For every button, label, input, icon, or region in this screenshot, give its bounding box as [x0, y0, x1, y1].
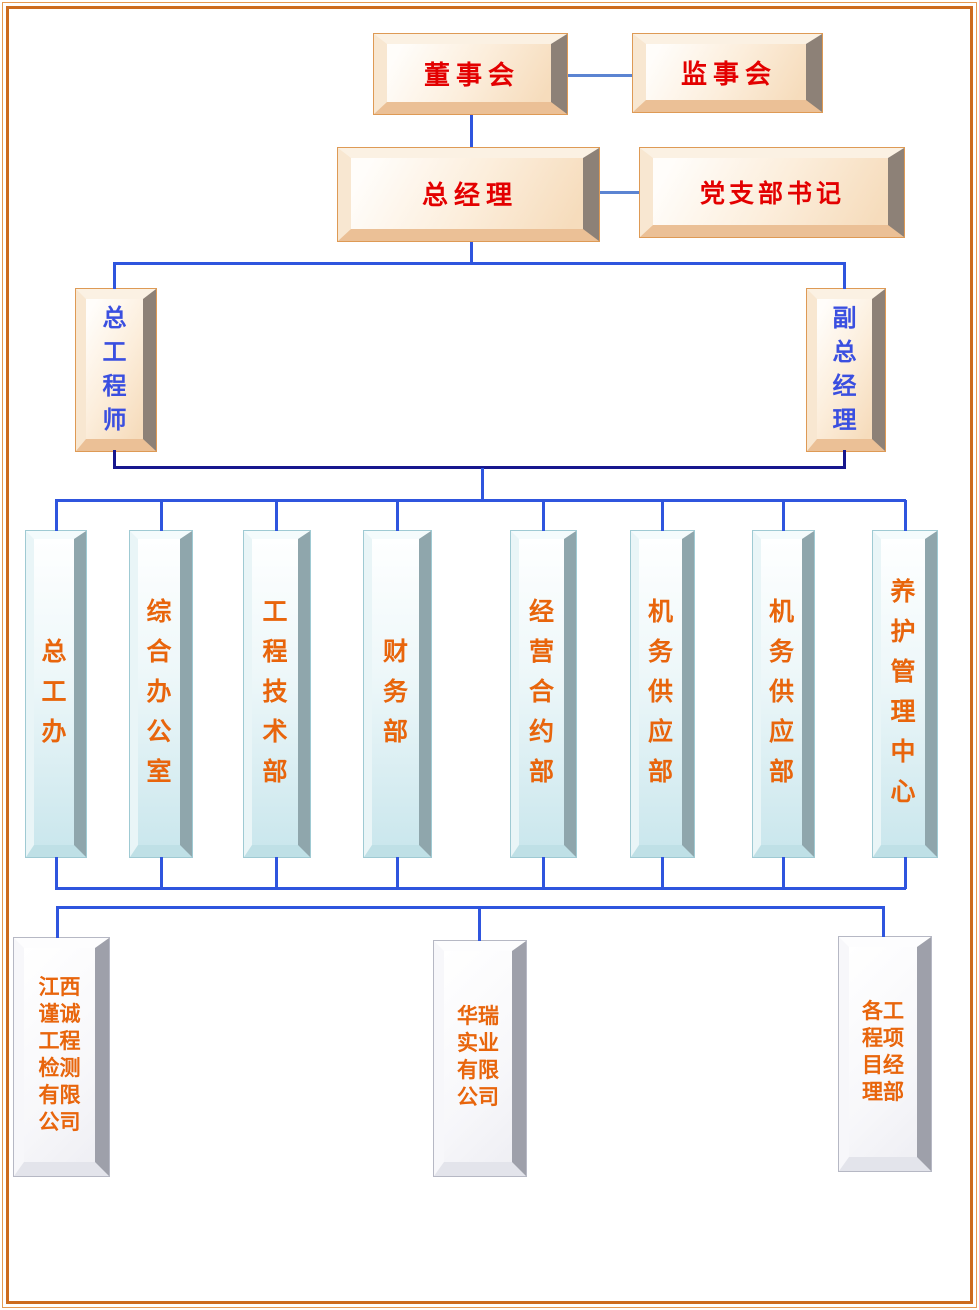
node-dept-general-engineering-office: 总工办	[25, 530, 87, 858]
node-deputy-general-manager: 副总经理	[806, 288, 886, 452]
connector-sub-drop-2	[478, 906, 481, 941]
connector-dept-out-8	[904, 857, 907, 889]
connector-dept-drop-5	[542, 500, 545, 531]
node-supervisory-board: 监事会	[632, 33, 823, 113]
connector-dept-out-4	[396, 857, 399, 889]
node-label: 机务供应部	[646, 592, 675, 792]
node-dept-operations-contract: 经营合约部	[510, 530, 577, 858]
node-label: 监事会	[675, 54, 777, 91]
node-label: 总工办	[40, 632, 69, 752]
connector-sub-drop-3	[882, 906, 885, 937]
connector-dept-drop-3	[275, 500, 278, 531]
connector-dept-out-5	[542, 857, 545, 889]
connector-dept-out-6	[661, 857, 664, 889]
connector-drop-deputy-gm	[843, 262, 846, 289]
connector-dept-drop-1	[55, 500, 58, 531]
node-label: 总经理	[416, 175, 518, 212]
node-label: 经营合约部	[527, 592, 556, 792]
node-label: 党支部书记	[696, 174, 845, 210]
node-project-manager-departments: 各工程项目经理部	[838, 936, 932, 1172]
connector-dept-out-7	[782, 857, 785, 889]
connector-drop-chief-engineer	[113, 262, 116, 289]
node-party-branch-secretary: 党支部书记	[639, 147, 905, 238]
node-label: 董事会	[418, 55, 520, 92]
node-label: 财务部	[381, 632, 410, 752]
connector-collector-bus	[55, 887, 906, 890]
node-label: 养护管理中心	[889, 572, 918, 812]
node-chief-engineer: 总工程师	[75, 288, 157, 452]
org-chart-page: 董事会 监事会 总经理 党支部书记 总工程师 副总经理 总工办 综合办公室 工程…	[0, 0, 979, 1310]
connector-board-to-gm	[470, 115, 473, 147]
node-dept-comprehensive-office: 综合办公室	[129, 530, 193, 858]
connector-subsidiaries-bus	[56, 906, 885, 909]
node-dept-machinery-supply-1: 机务供应部	[630, 530, 695, 858]
connector-departments-bus	[55, 499, 906, 502]
node-label: 副总经理	[831, 301, 859, 437]
connector-dept-drop-2	[160, 500, 163, 531]
connector-dept-drop-7	[782, 500, 785, 531]
node-dept-maintenance-management-center: 养护管理中心	[872, 530, 938, 858]
connector-board-supervisory	[568, 74, 632, 77]
node-label: 总工程师	[101, 301, 129, 437]
connector-center-drop	[481, 468, 484, 501]
connector-dept-drop-4	[396, 500, 399, 531]
connector-dept-out-3	[275, 857, 278, 889]
connector-level3-bus	[113, 262, 846, 265]
node-subsidiary-jiangxi-jincheng-testing: 江西谨诚工程检测有限公司	[13, 937, 110, 1177]
node-board-of-directors: 董事会	[373, 33, 568, 115]
node-label: 工程技术部	[261, 592, 290, 792]
node-subsidiary-huarui-industrial: 华瑞实业有限公司	[433, 940, 527, 1177]
connector-dept-out-2	[160, 857, 163, 889]
node-label: 综合办公室	[145, 592, 174, 792]
node-label: 江西谨诚工程检测有限公司	[36, 974, 82, 1136]
connector-dept-drop-6	[661, 500, 664, 531]
node-dept-finance: 财务部	[363, 530, 432, 858]
node-dept-engineering-technology: 工程技术部	[243, 530, 311, 858]
connector-gm-drop	[470, 242, 473, 264]
node-general-manager: 总经理	[337, 147, 600, 242]
connector-level3-join-bus	[113, 466, 846, 469]
connector-gm-party-secretary	[600, 191, 639, 194]
node-label: 机务供应部	[767, 592, 796, 792]
connector-dept-drop-8	[904, 500, 907, 531]
node-dept-machinery-supply-2: 机务供应部	[752, 530, 815, 858]
node-label: 各工程项目经理部	[860, 998, 906, 1106]
connector-dept-out-1	[55, 857, 58, 889]
connector-sub-drop-1	[56, 906, 59, 938]
node-label: 华瑞实业有限公司	[455, 1003, 501, 1111]
